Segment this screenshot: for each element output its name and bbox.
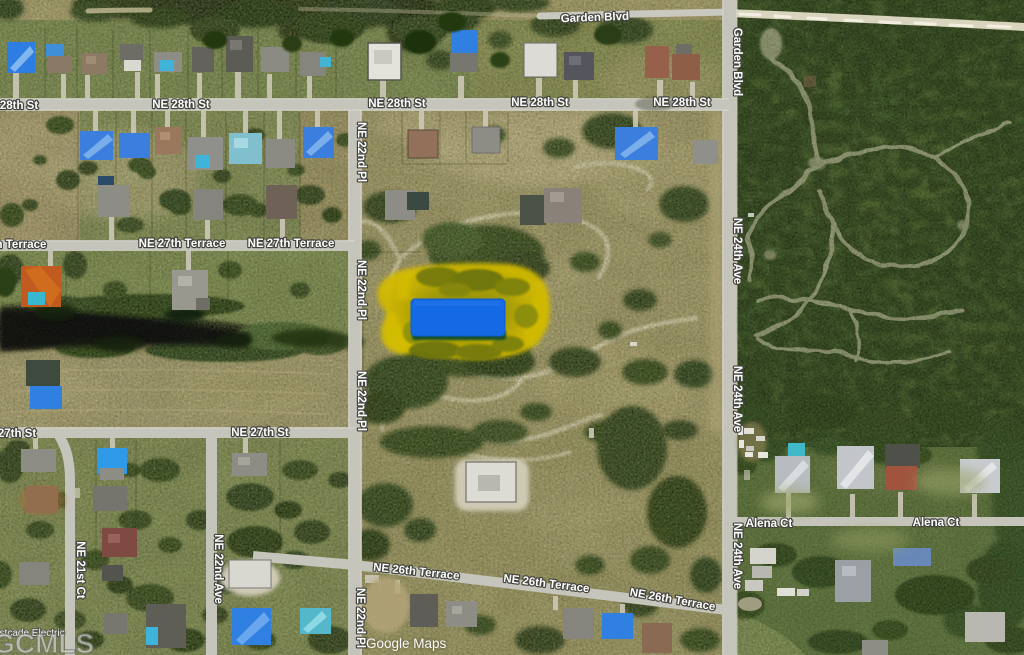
svg-text:NE 28th St: NE 28th St (653, 97, 711, 109)
svg-text:NE 27th St: NE 27th St (231, 427, 289, 439)
svg-text:Google Maps: Google Maps (366, 636, 447, 651)
svg-text:NE 27th Terrace: NE 27th Terrace (139, 238, 226, 250)
svg-text:NE 22nd Pl: NE 22nd Pl (354, 588, 366, 648)
svg-text:NE 22nd Pl: NE 22nd Pl (355, 371, 367, 431)
svg-text:NE 27th Terrace: NE 27th Terrace (248, 238, 335, 250)
svg-text:NE 22nd Ave: NE 22nd Ave (212, 534, 224, 603)
svg-text:NE 28th St: NE 28th St (368, 98, 426, 110)
svg-text:27th St: 27th St (0, 428, 36, 440)
svg-text:28th St: 28th St (0, 100, 38, 112)
svg-text:NE 24th Ave: NE 24th Ave (731, 523, 743, 589)
svg-text:NE 22nd Pl: NE 22nd Pl (355, 260, 367, 320)
svg-text:NE 22nd Pl: NE 22nd Pl (355, 122, 367, 182)
svg-text:h Terrace: h Terrace (0, 239, 46, 251)
svg-text:Alena Ct: Alena Ct (913, 517, 960, 529)
svg-text:Garden Blvd: Garden Blvd (731, 28, 743, 96)
svg-text:NE 21st Ct: NE 21st Ct (74, 541, 86, 599)
svg-text:NE 28th St: NE 28th St (511, 97, 569, 109)
svg-text:NE 24th Ave: NE 24th Ave (731, 218, 743, 284)
svg-text:Alena Ct: Alena Ct (746, 518, 793, 530)
svg-text:FGCMLS: FGCMLS (0, 628, 94, 655)
svg-text:NE 28th St: NE 28th St (152, 99, 210, 111)
svg-text:Garden Blvd: Garden Blvd (561, 11, 630, 25)
svg-text:NE 24th Ave: NE 24th Ave (731, 366, 743, 432)
